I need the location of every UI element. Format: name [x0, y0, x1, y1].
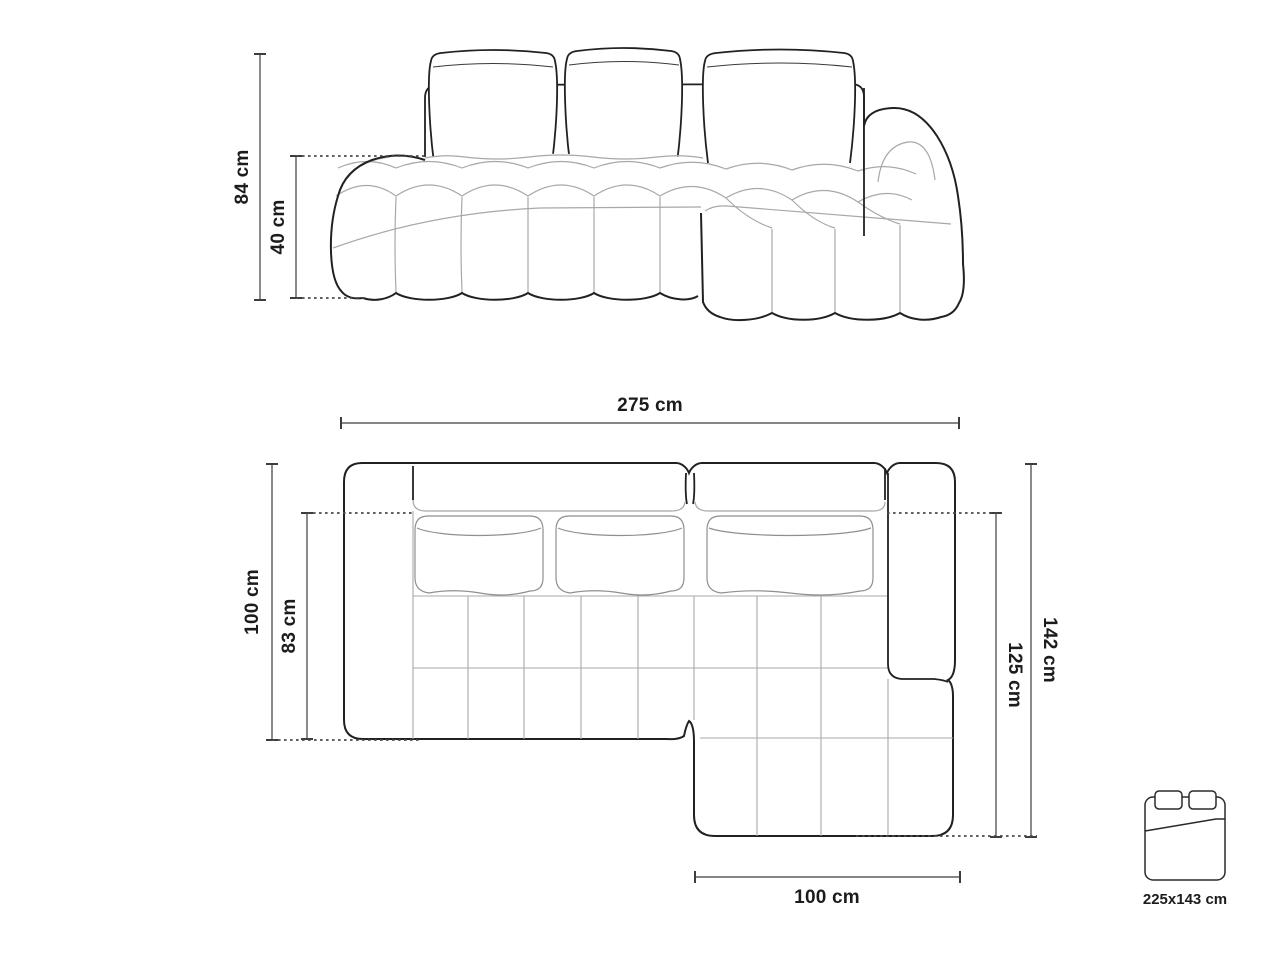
seat-body	[331, 154, 704, 300]
dimension-label-40cm: 40 cm	[268, 200, 289, 255]
dimension-label-83cm: 83 cm	[279, 599, 300, 654]
dimension-label-84cm: 84 cm	[232, 150, 253, 205]
dimension-100cm-bottom	[695, 871, 960, 883]
plan-pillow	[415, 516, 543, 595]
dimension-label-100cm-bottom: 100 cm	[794, 887, 860, 908]
dimension-label-142cm: 142 cm	[1039, 617, 1060, 683]
back-pillow	[565, 48, 682, 163]
sleeping-function-icon	[1145, 791, 1225, 880]
dimension-label-275cm: 275 cm	[617, 395, 683, 416]
bed-pillow-icon	[1189, 791, 1216, 809]
dimension-142cm	[1025, 464, 1037, 837]
dimension-275cm	[341, 417, 959, 429]
plan-pillow	[556, 516, 684, 595]
top-plan-view: 275 cm 100 cm 83 cm 142 cm 125 cm	[242, 395, 1060, 908]
plan-pillows	[415, 516, 873, 595]
dimension-125cm	[990, 513, 1002, 837]
dimension-83cm	[301, 513, 313, 739]
dimension-label-100cm-left: 100 cm	[242, 569, 263, 635]
dimension-84cm	[254, 54, 266, 300]
diagram-canvas: 84 cm 40 cm	[0, 0, 1280, 960]
dimension-40cm	[290, 156, 302, 298]
sleeping-area-label: 225x143 cm	[1143, 891, 1227, 908]
plan-pillow	[707, 516, 873, 595]
dimension-label-125cm: 125 cm	[1004, 642, 1025, 708]
bed-pillow-icon	[1155, 791, 1182, 809]
back-pillow	[703, 50, 855, 164]
back-pillow	[429, 50, 557, 163]
sofa-dimensions-diagram: 84 cm 40 cm	[0, 0, 1280, 960]
back-pillows	[429, 48, 855, 163]
dimension-100cm-left	[266, 464, 278, 740]
front-elevation-view: 84 cm 40 cm	[232, 48, 964, 320]
